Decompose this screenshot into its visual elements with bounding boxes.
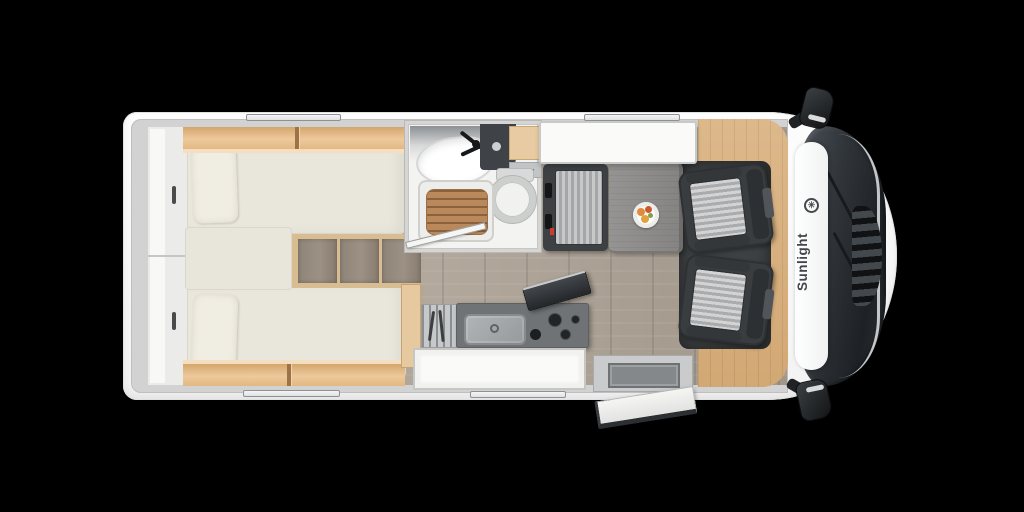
- overhead-locker-top: [183, 127, 408, 153]
- wardrobe-handle-icon: [172, 312, 176, 330]
- locker-divider: [287, 364, 291, 386]
- locker-divider: [295, 127, 299, 149]
- step-tread: [298, 239, 337, 283]
- side-mirror-bottom: [784, 368, 838, 424]
- motorhome-floorplan-canvas: ✳ Sunlight: [0, 0, 1024, 512]
- kitchen-counter: [456, 303, 589, 348]
- cab-seat-passenger: [677, 162, 774, 254]
- window-bottom-front: [470, 391, 566, 398]
- food-item-icon: [648, 213, 653, 218]
- dish-rack: [421, 304, 457, 348]
- food-plate: [633, 202, 659, 228]
- headrest-icon: [545, 183, 552, 198]
- bed-extension-cushion: [185, 227, 292, 290]
- toilet: [489, 176, 536, 223]
- bathroom-wood-shelf: [509, 126, 540, 160]
- entry-step-inner: [608, 363, 680, 388]
- dinette-bench: [543, 164, 608, 251]
- utensil-icon: [428, 311, 435, 341]
- seat-cushion: [689, 177, 748, 241]
- seat-cushion: [689, 268, 748, 332]
- side-mirror-top: [786, 84, 838, 142]
- brand-logo-icon: ✳: [804, 198, 819, 213]
- cab-seat-driver: [677, 253, 775, 347]
- overhead-shelf: [539, 121, 697, 164]
- window-top-rear: [246, 114, 341, 121]
- rear-wardrobe-divider: [148, 255, 188, 257]
- seatbelt-buckle-icon: [550, 228, 554, 235]
- brand-logo-glyph: ✳: [808, 201, 816, 210]
- burner-icon: [548, 313, 562, 327]
- mirror-head-icon: [794, 377, 834, 423]
- bathroom: [405, 121, 541, 252]
- faucet-knob-icon: [472, 140, 480, 148]
- entry-door-panel: [419, 354, 580, 384]
- headrest-icon: [545, 214, 552, 229]
- window-bottom-rear: [243, 390, 340, 397]
- dinette-table: [609, 163, 683, 253]
- entry-door: [413, 348, 586, 390]
- utensil-icon: [438, 310, 444, 342]
- step-tread: [340, 239, 379, 283]
- mirror-head-icon: [798, 85, 837, 131]
- overhead-locker-bottom: [183, 360, 405, 386]
- entry-step: [593, 355, 693, 392]
- pillow-top: [191, 144, 239, 224]
- window-top-front: [584, 114, 680, 121]
- drain-icon: [490, 324, 499, 333]
- light-dot-icon: [492, 142, 501, 151]
- food-item-icon: [645, 206, 652, 213]
- burner-icon: [560, 329, 571, 340]
- bench-cushion: [555, 170, 603, 245]
- brand-wordmark: Sunlight: [795, 218, 828, 306]
- burner-icon: [571, 315, 580, 324]
- hob-knob-icon: [530, 329, 541, 340]
- wardrobe-handle-icon: [172, 186, 176, 204]
- bed-steps: [292, 234, 421, 288]
